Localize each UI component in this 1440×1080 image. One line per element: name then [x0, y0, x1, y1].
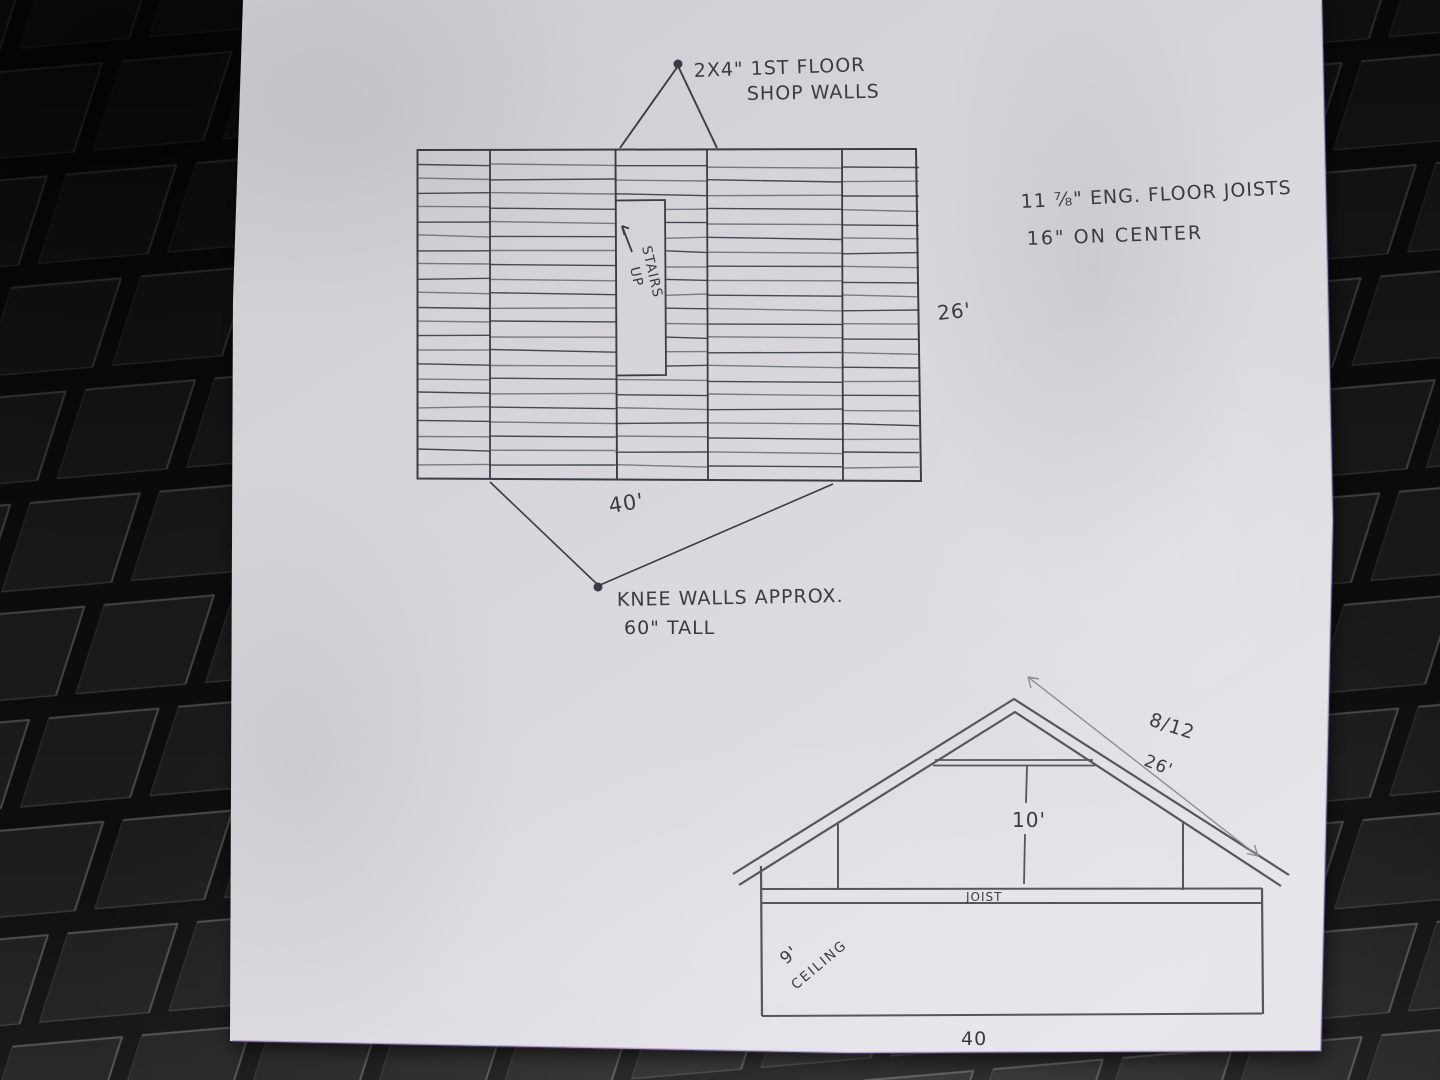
plan-depth-dimension: 26' — [936, 298, 972, 325]
shop-wall-callout-line2: SHOP WALLS — [747, 81, 880, 105]
sketch-layer: STAIRS UP 2X4" 1ST FLOOR SHOP WALLS 11 ⅞… — [0, 0, 1440, 1080]
plan-knee-wall-right-line — [842, 149, 843, 480]
knee-wall-callout-line2: 60" TALL — [624, 617, 715, 639]
joist-label: JOIST — [965, 890, 1002, 904]
attic-height-dimension: 10' — [1012, 808, 1046, 832]
photo-of-sketch: STAIRS UP 2X4" 1ST FLOOR SHOP WALLS 11 ⅞… — [0, 0, 1440, 1080]
plan-shop-wall-right-line — [707, 150, 708, 480]
section-width-dimension: 40 — [961, 1028, 987, 1050]
right-wall-line — [1262, 888, 1263, 1014]
left-wall-line — [761, 866, 762, 1016]
knee-wall-callout-line1: KNEE WALLS APPROX. — [617, 585, 844, 611]
